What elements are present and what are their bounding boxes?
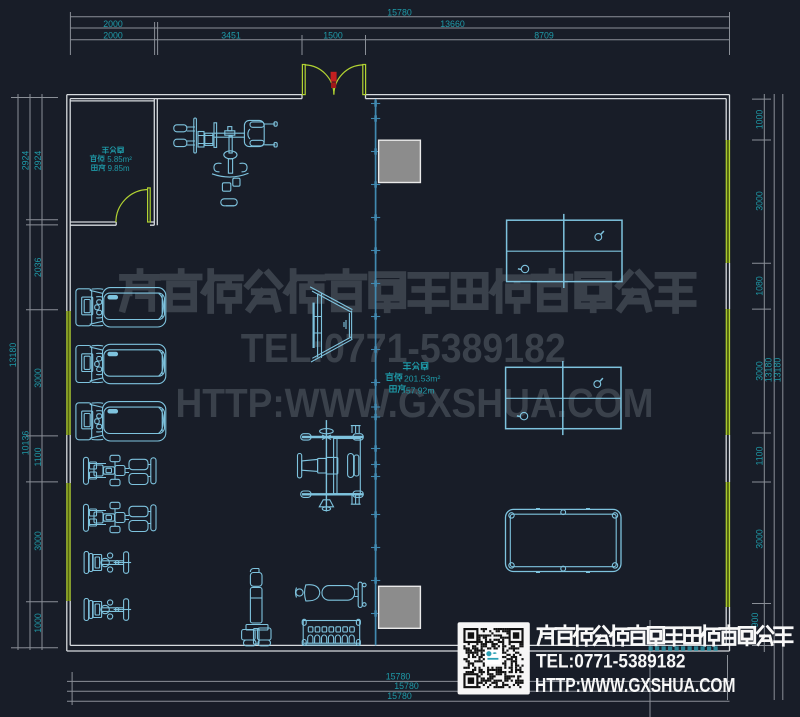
svg-text:2036: 2036 — [33, 258, 43, 278]
svg-text:8709: 8709 — [534, 31, 554, 41]
svg-text:3000: 3000 — [33, 368, 43, 388]
svg-text:3000: 3000 — [755, 191, 765, 211]
svg-text:13180: 13180 — [8, 343, 18, 368]
svg-text:1100: 1100 — [33, 447, 43, 466]
svg-text:2000: 2000 — [103, 19, 123, 29]
svg-text:13180: 13180 — [772, 358, 782, 383]
svg-text:3451: 3451 — [221, 31, 241, 41]
svg-text:1080: 1080 — [755, 276, 765, 296]
svg-text:15780: 15780 — [386, 671, 411, 681]
svg-text:1500: 1500 — [323, 31, 343, 41]
svg-text:TEL:0771-5389182: TEL:0771-5389182 — [241, 325, 566, 371]
svg-text:HTTP:WWW.GXSHUA.COM: HTTP:WWW.GXSHUA.COM — [535, 675, 736, 697]
svg-text:10136: 10136 — [21, 431, 31, 456]
svg-text:2000: 2000 — [103, 31, 123, 41]
svg-text:15780: 15780 — [387, 8, 412, 18]
svg-text:3000: 3000 — [755, 529, 765, 549]
svg-text:3000: 3000 — [33, 531, 43, 551]
svg-text:1100: 1100 — [755, 446, 765, 465]
svg-text:2924: 2924 — [21, 151, 31, 171]
svg-text:15780: 15780 — [387, 691, 412, 701]
svg-text:15780: 15780 — [394, 681, 419, 691]
svg-text:: 57.92m: : 57.92m — [392, 386, 435, 396]
svg-text:1000: 1000 — [755, 110, 765, 130]
svg-text:2924: 2924 — [33, 151, 43, 171]
svg-text:13660: 13660 — [440, 19, 465, 29]
svg-text:TEL:0771-5389182: TEL:0771-5389182 — [536, 651, 686, 672]
svg-text:900: 900 — [750, 613, 760, 628]
svg-text:: 201.53m²: : 201.53m² — [390, 374, 441, 384]
svg-text:1000: 1000 — [33, 613, 43, 633]
